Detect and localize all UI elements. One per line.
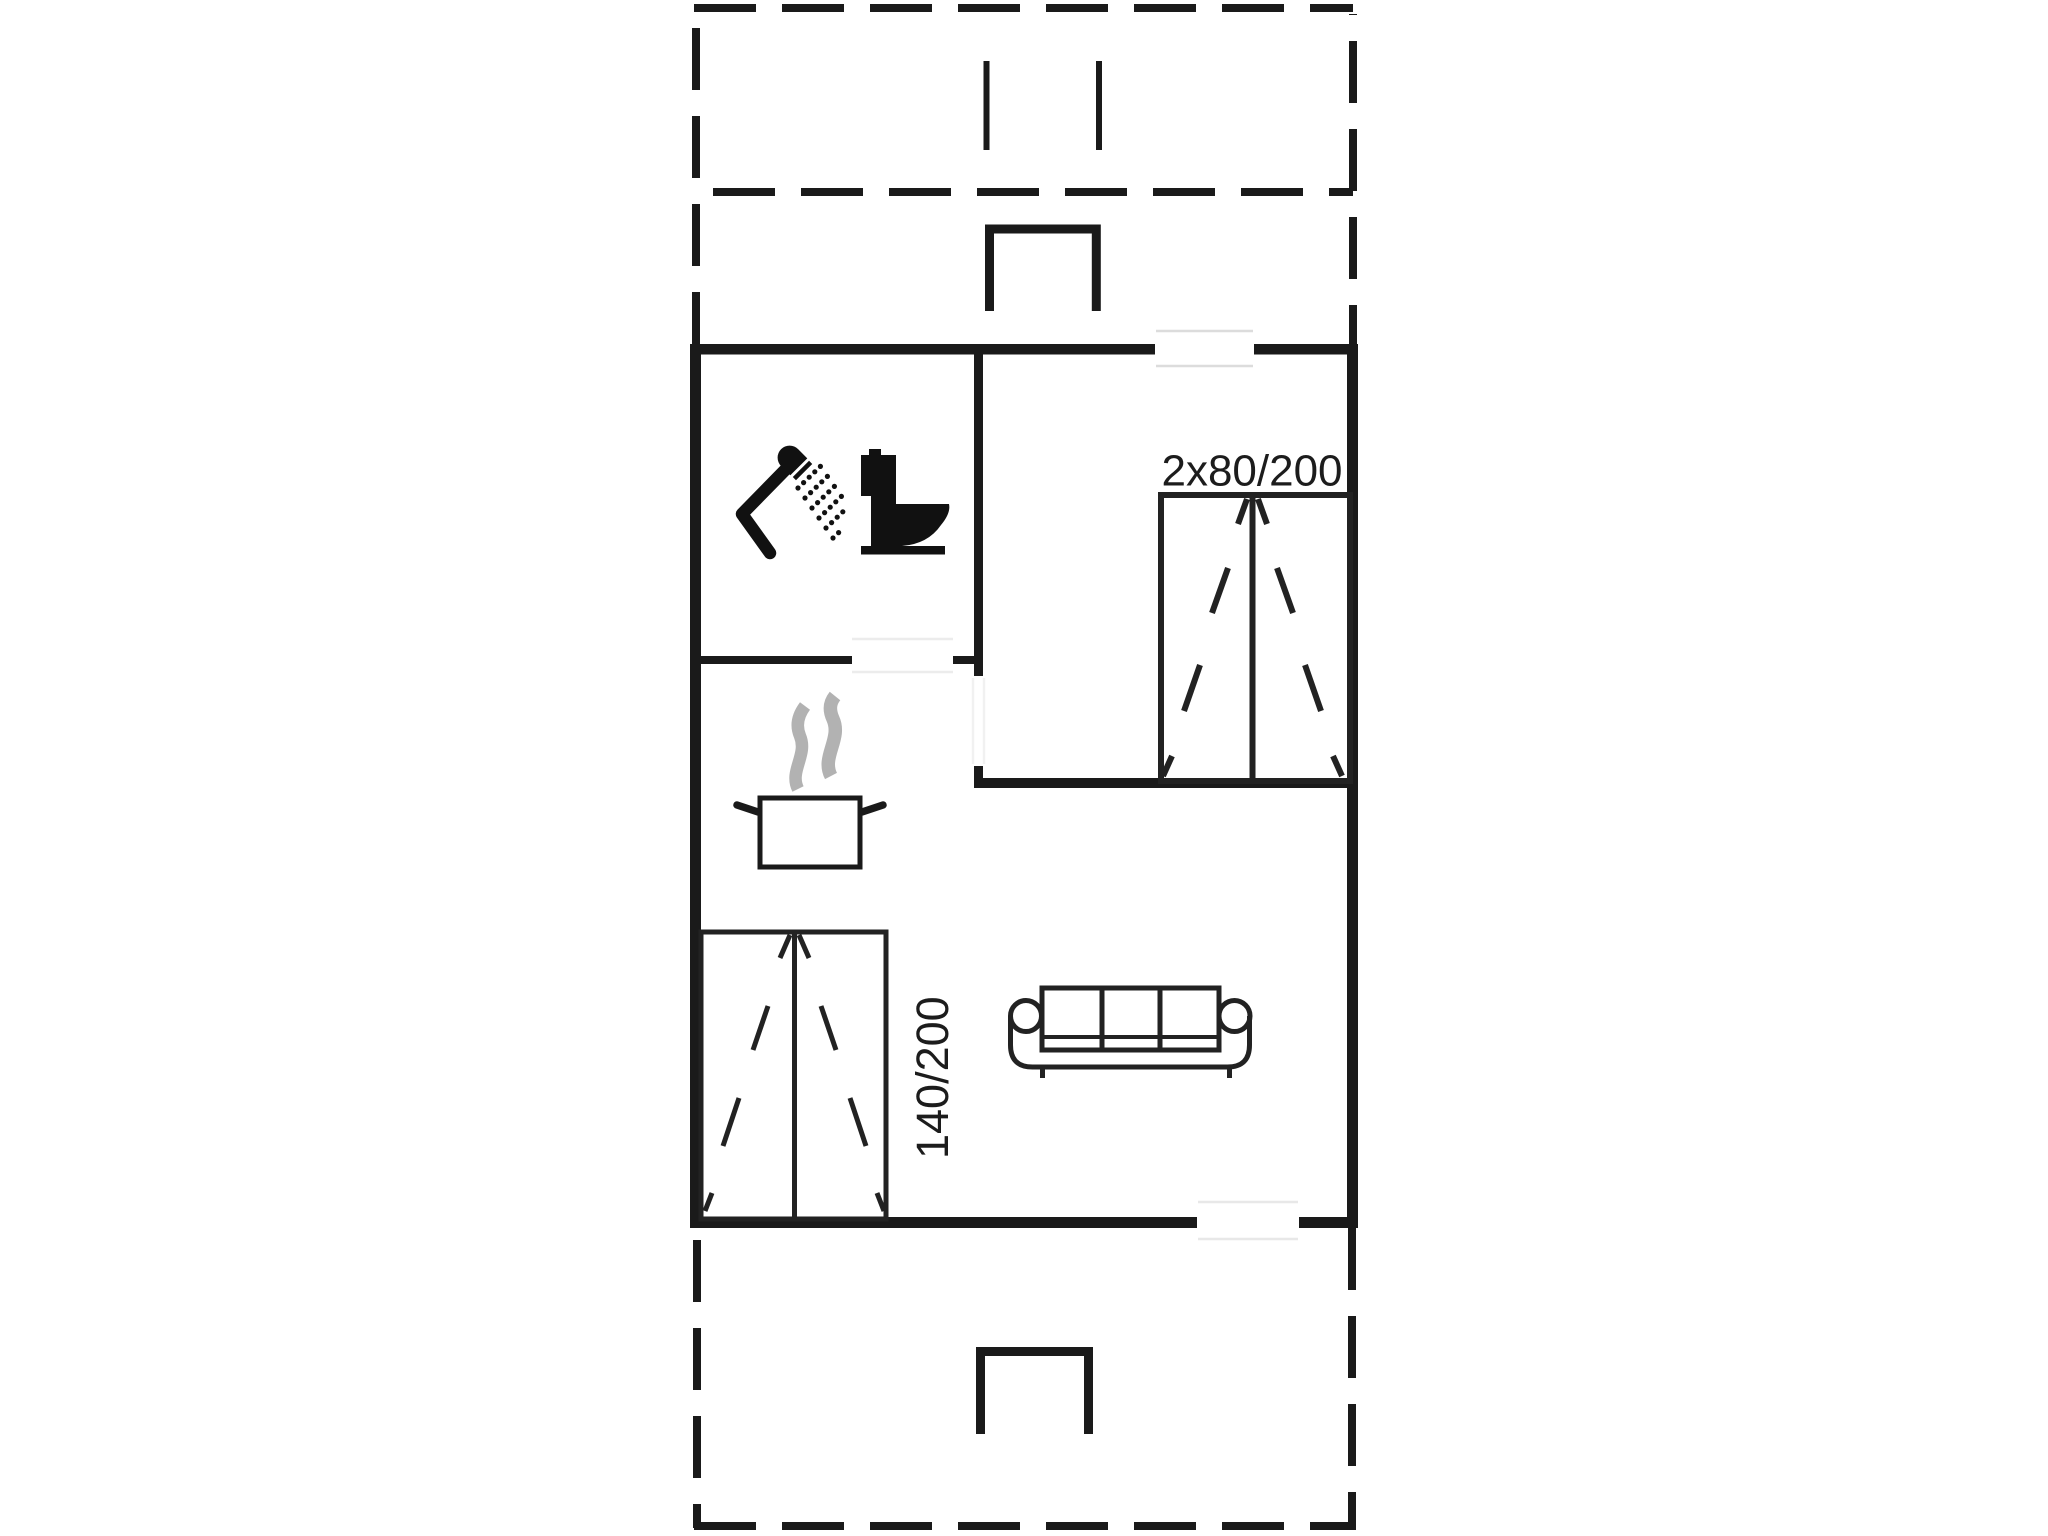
svg-text:140/200: 140/200 — [907, 996, 958, 1159]
svg-text:2x80/200: 2x80/200 — [1161, 447, 1342, 496]
